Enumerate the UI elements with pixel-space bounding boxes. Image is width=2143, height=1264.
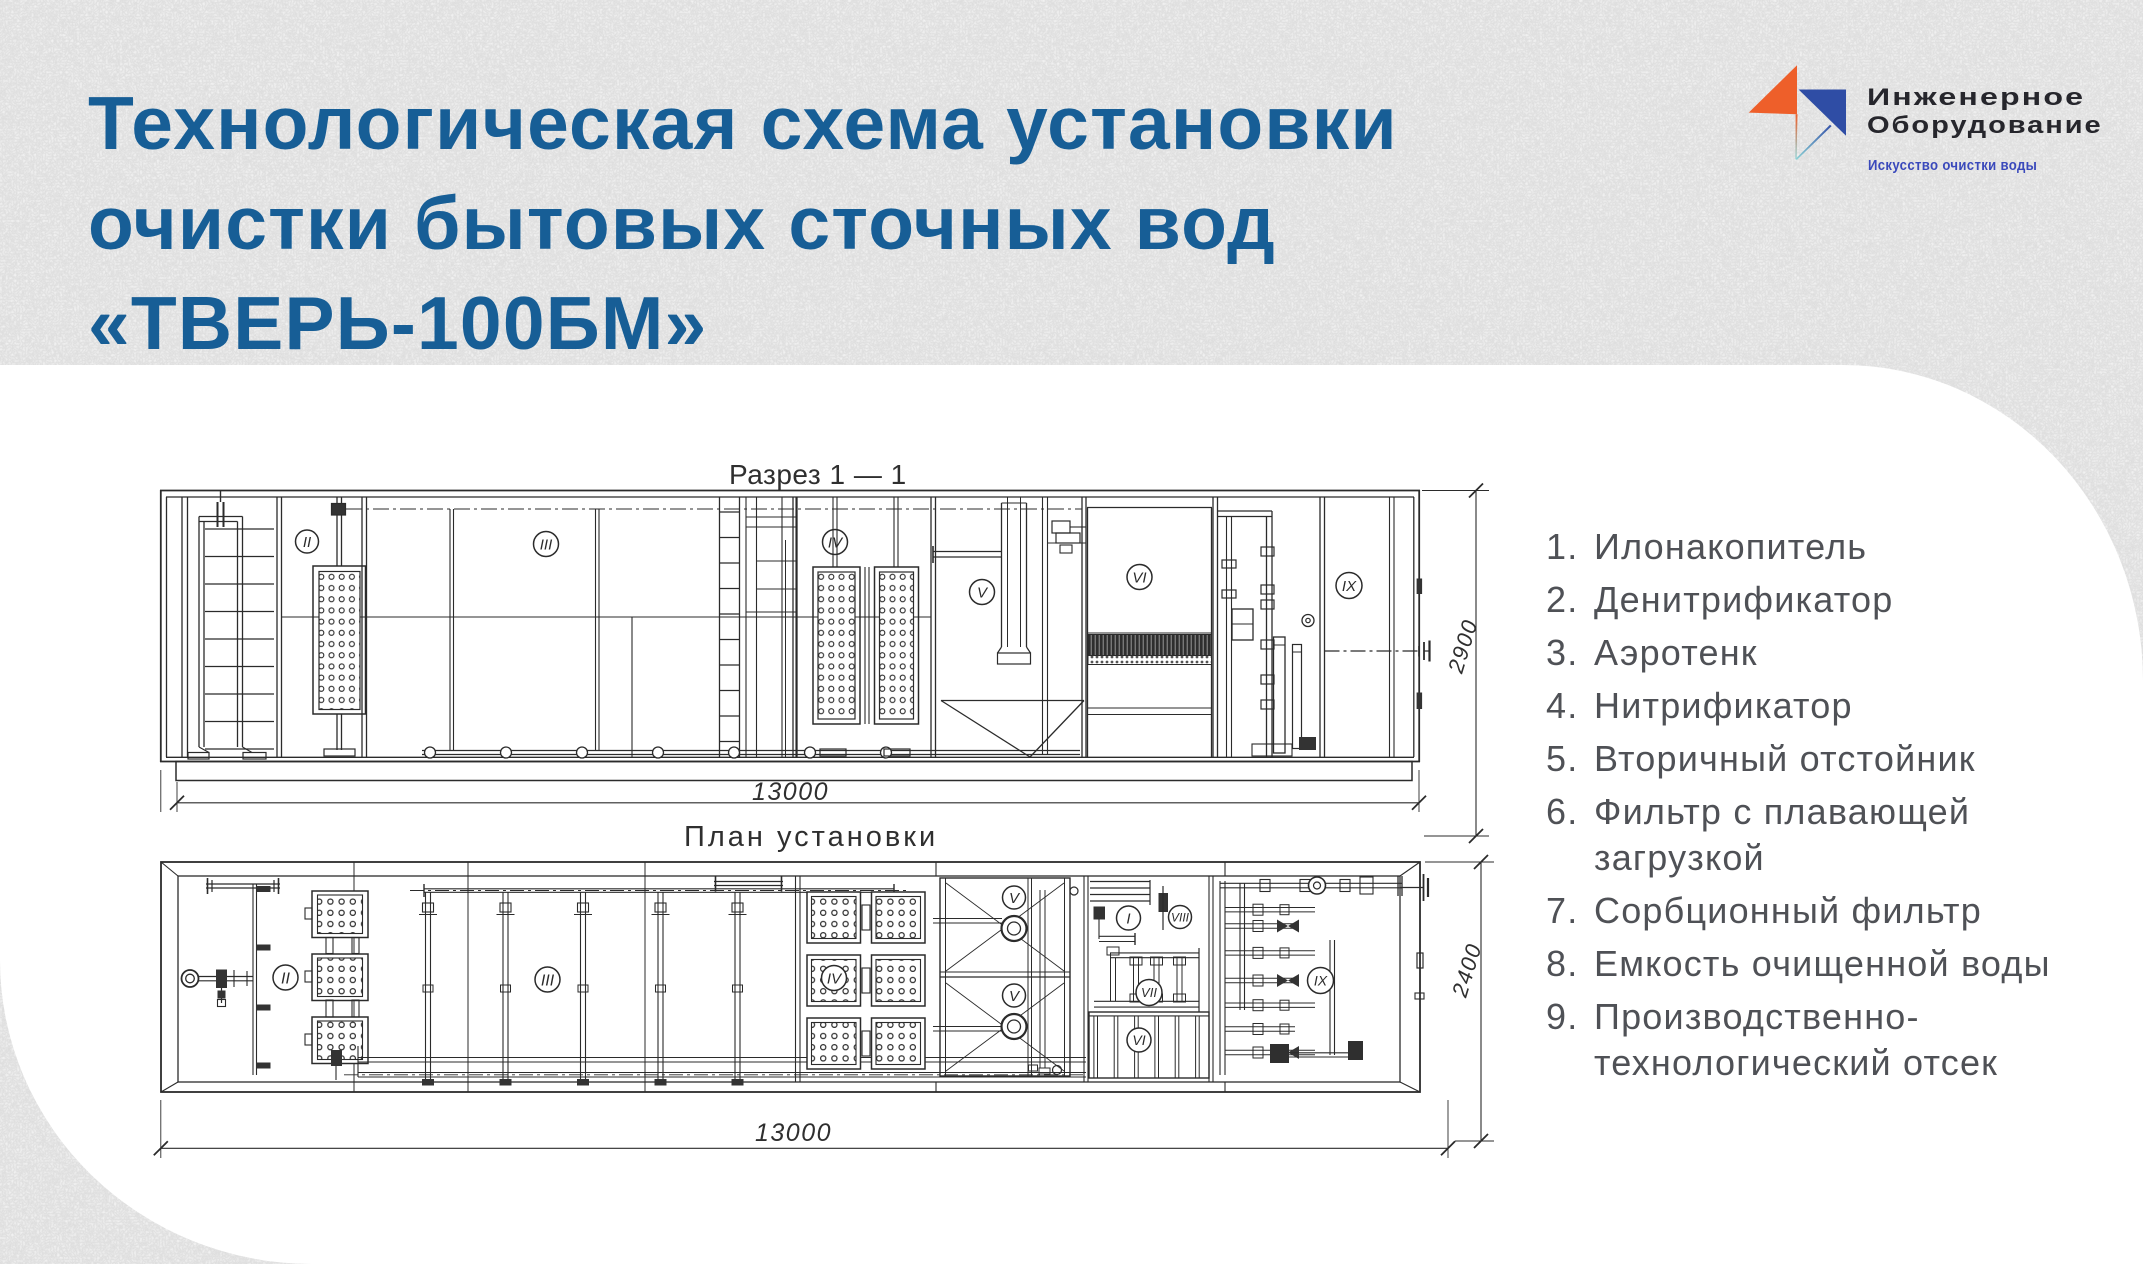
svg-text:2900: 2900 [1443, 616, 1483, 677]
svg-text:VIII: VIII [1171, 910, 1190, 924]
svg-text:III: III [540, 536, 553, 553]
svg-text:VII: VII [1141, 985, 1157, 1000]
svg-text:IX: IX [1342, 578, 1357, 595]
svg-text:План установки: План установки [684, 821, 938, 853]
svg-text:13000: 13000 [752, 778, 829, 806]
svg-text:Разрез 1 — 1: Разрез 1 — 1 [729, 459, 907, 490]
svg-text:II: II [303, 534, 311, 551]
svg-text:I: I [1126, 910, 1130, 927]
svg-text:II: II [281, 970, 290, 987]
svg-text:VI: VI [1132, 1032, 1145, 1048]
svg-text:IX: IX [1314, 973, 1328, 989]
svg-text:VI: VI [1132, 569, 1146, 586]
svg-text:13000: 13000 [755, 1119, 832, 1147]
svg-text:IV: IV [827, 970, 843, 987]
svg-text:III: III [541, 972, 555, 989]
svg-text:IV: IV [828, 534, 844, 551]
